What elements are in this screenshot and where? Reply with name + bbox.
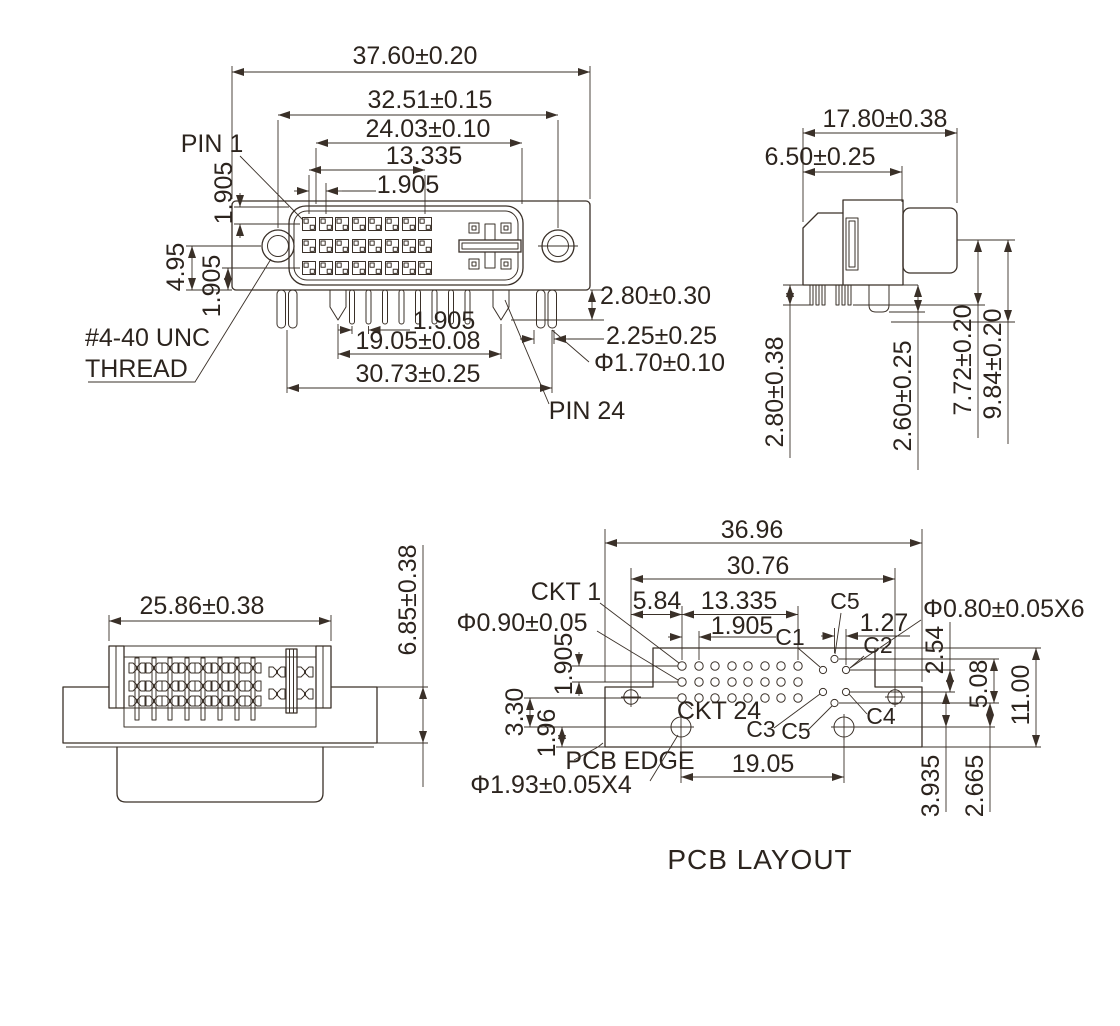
- ckt1-label: CKT 1: [531, 578, 601, 606]
- dim-pcb-grid-pitch: 1.905: [711, 612, 774, 640]
- dim-pcb-row-to-mount: 3.30: [501, 688, 529, 737]
- dim-front-pin-span: 19.05±0.08: [356, 327, 481, 355]
- c4-label: C4: [866, 703, 896, 729]
- dim-pcb-c-col-span: 5.08: [965, 660, 993, 709]
- dim-pcb-c-row-pitch: 2.54: [921, 626, 949, 675]
- thread-label-line2: THREAD: [85, 355, 188, 383]
- front-microcross: [459, 223, 521, 269]
- pcb-c-holes: [819, 655, 849, 706]
- dim-front-row-lower: 1.905: [198, 255, 226, 318]
- lock-hole-leader: [552, 330, 589, 362]
- dim-front-lock-hole: Φ1.70±0.10: [594, 349, 725, 377]
- dim-front-screw-span: 32.51±0.15: [368, 86, 493, 114]
- dim-side-lock-length: 2.60±0.25: [889, 340, 917, 451]
- dim-pcb-board-width: 36.96: [721, 516, 784, 544]
- rear-view: 25.86±0.38 6.85±0.38: [63, 544, 428, 802]
- signal-hole-leader: [597, 631, 678, 680]
- dim-pcb-mount-hole: Φ1.93±0.05X4: [470, 771, 632, 799]
- dim-pcb-mount-to-edge: 1.96: [533, 709, 561, 758]
- dim-front-row-offset: 1.905: [210, 162, 238, 225]
- side-bracket: [803, 213, 843, 285]
- c5-top-label: C5: [830, 588, 859, 614]
- connector-drawing: 37.60±0.20 32.51±0.15 24.03±0.10 13.335 …: [0, 0, 1120, 1026]
- rear-skirt: [117, 747, 323, 802]
- side-view: 17.80±0.38 6.50±0.25 2.80±0.38 2.60±0.25…: [761, 105, 1015, 470]
- dim-pcb-grid-span: 13.335: [701, 587, 777, 615]
- dim-pcb-c4-to-mount: 3.935: [917, 755, 945, 818]
- thread-label-line1: #4-40 UNC: [85, 324, 210, 352]
- dim-front-boardlock-span: 30.73±0.25: [356, 360, 481, 388]
- side-mating-shroud: [903, 208, 957, 273]
- dim-side-height-back: 9.84±0.20: [979, 308, 1007, 419]
- front-flange: [232, 201, 590, 290]
- dim-pcb-c-hole: Φ0.80±0.05X6: [923, 595, 1085, 623]
- dim-front-pin-length: 2.80±0.30: [600, 282, 711, 310]
- dim-pcb-board-height: 11.00: [1007, 665, 1035, 726]
- dim-rear-height: 6.85±0.38: [394, 544, 422, 655]
- dim-pcb-row-pitch: 1.905: [550, 633, 578, 696]
- side-pins: [810, 285, 889, 312]
- pin1-label: PIN 1: [181, 130, 244, 158]
- rear-blade: [286, 649, 297, 713]
- dim-rear-width: 25.86±0.38: [140, 592, 265, 620]
- c1-label: C1: [775, 624, 804, 650]
- ckt24-label: CKT 24: [677, 697, 761, 725]
- dim-side-height-front: 7.72±0.20: [949, 304, 977, 415]
- c5-bottom-label: C5: [781, 718, 810, 744]
- dim-pcb-mount-span: 30.76: [727, 552, 790, 580]
- c2-label: C2: [863, 632, 892, 658]
- dim-pcb-c5-to-mount: 2.665: [961, 755, 989, 818]
- dim-front-lock-offset: 2.25±0.25: [606, 322, 717, 350]
- technical-drawing-page: 37.60±0.20 32.51±0.15 24.03±0.10 13.335 …: [0, 0, 1120, 1026]
- dim-front-height-mid: 4.95: [162, 243, 190, 292]
- dim-front-contact-pitch: 1.905: [377, 171, 440, 199]
- dim-side-depth-total: 17.80±0.38: [823, 105, 948, 133]
- front-contact-grid: [303, 218, 432, 275]
- pcb-layout-title: PCB LAYOUT: [667, 844, 852, 875]
- front-screw-holes: [262, 230, 578, 262]
- pcb-layout-view: 36.96 30.76 5.84 13.335 1.905 1.27 CKT 1…: [457, 516, 1085, 875]
- dim-front-shroud-width: 24.03±0.10: [366, 115, 491, 143]
- dim-side-pin-length: 2.80±0.38: [761, 336, 789, 447]
- rear-flange: [63, 687, 377, 743]
- dim-pcb-mount-span-bottom: 19.05: [732, 750, 795, 778]
- dim-front-width-outer: 37.60±0.20: [353, 42, 478, 70]
- front-view: 37.60±0.20 32.51±0.15 24.03±0.10 13.335 …: [85, 42, 725, 425]
- dim-pcb-hole-offset: 5.84: [633, 587, 682, 615]
- side-body: [843, 200, 903, 285]
- pin24-label: PIN 24: [549, 397, 626, 425]
- dim-side-body-depth: 6.50±0.25: [764, 143, 875, 171]
- pin1-leader: [240, 156, 303, 220]
- dim-front-contact-span: 13.335: [386, 142, 462, 170]
